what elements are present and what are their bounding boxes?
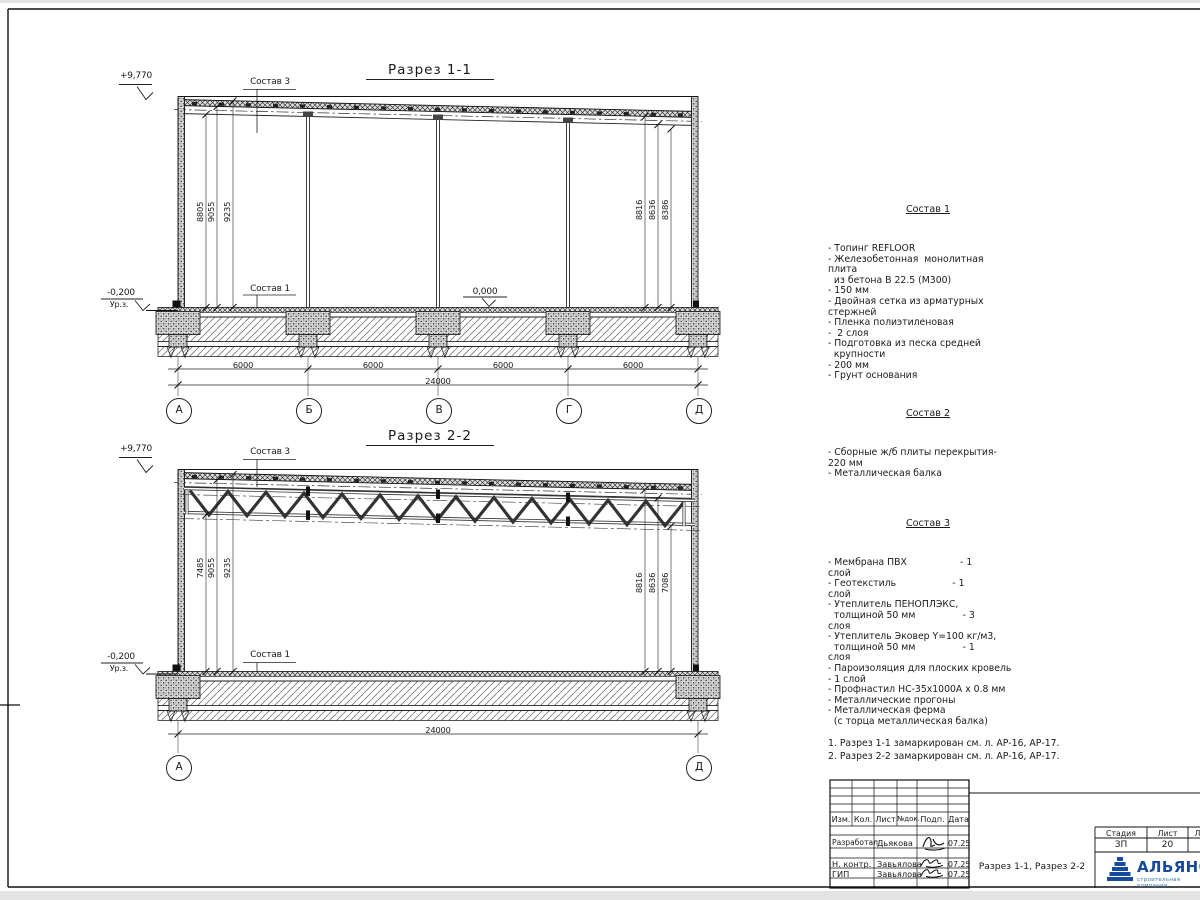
sostav3-line: толщиной 50 мм - 3: [828, 611, 1028, 622]
tb-sheet-value: 20: [1147, 840, 1188, 850]
sostav3-line: - Мембрана ПВХ - 1: [828, 558, 1028, 569]
section2-elevation-ground: -0,200: [97, 652, 145, 662]
section1-title: Разрез 1-1: [366, 62, 494, 80]
sostav3-line: (с торца металлическая балка): [828, 717, 1028, 728]
signature-nkontr: [921, 860, 943, 868]
axis-bubble-v: В: [426, 398, 452, 424]
tb-name: Дьякова: [877, 838, 916, 848]
tb-col-podp: Подп.: [917, 815, 948, 824]
tb-col-ndok: №док.: [897, 815, 917, 823]
sostav1-line: - Топинг REFLOOR: [828, 244, 1028, 255]
tb-col-list: Лист: [874, 815, 897, 824]
tb-sheet-header: Лист: [1147, 829, 1188, 838]
sostav3-lines: - Мембрана ПВХ - 1слой- Геотекстиль - 1с…: [828, 558, 1028, 728]
dim-label: 9055: [206, 190, 216, 234]
sostav1-title: Состав 1: [828, 205, 1028, 216]
axis-bubble-d: Д: [686, 398, 712, 424]
sostav1-block: Состав 1 - Топинг REFLOOR- Железобетонна…: [828, 184, 1028, 403]
note-line: 2. Разрез 2-2 замаркирован см. л. АР-16,…: [828, 750, 1060, 763]
sostav2-title: Состав 2: [828, 409, 1028, 420]
section1-elevation-zero: 0,000: [461, 287, 509, 297]
section2-ground-label: Ур.з.: [99, 664, 139, 673]
tb-sheets-header: Листов: [1188, 829, 1200, 838]
tb-role: ГИП: [832, 869, 874, 879]
dim-label: 8816: [634, 188, 644, 232]
section1-sostav3-label: Состав 3: [240, 77, 300, 87]
sostav1-line: - Грунт основания: [828, 371, 1028, 382]
dim-label: 6000: [603, 360, 663, 370]
dim-label-total: 24000: [408, 376, 468, 386]
dim-label: 9055: [206, 546, 216, 590]
dim-label: 9235: [222, 546, 232, 590]
dim-label: 6000: [213, 360, 273, 370]
drawing-sheet: Разрез 1-1 +9,770 Состав 3 Состав 1 0,00…: [0, 0, 1200, 900]
sostav3-block: Состав 3 - Мембрана ПВХ - 1слой- Геотекс…: [828, 498, 1028, 749]
section1-elevation-top: +9,770: [112, 71, 160, 81]
tb-name: Завьялова: [877, 859, 916, 869]
section1-ground-label: Ур.з.: [99, 300, 139, 309]
dim-label: 6000: [473, 360, 533, 370]
sostav3-line: - Пароизоляция для плоских кровель: [828, 664, 1028, 675]
axis-bubble-a: А: [166, 755, 192, 781]
section1-elevation-ground: -0,200: [97, 288, 145, 298]
sostav2-line: - Сборные ж/б плиты перекрытия-: [828, 448, 1028, 459]
axis-bubble-b: Б: [296, 398, 322, 424]
dim-label: 8805: [195, 190, 205, 234]
sostav3-line: - Геотекстиль - 1: [828, 579, 1028, 590]
dim-label: 7485: [195, 546, 205, 590]
dim-label: 7086: [660, 561, 670, 605]
axis-bubble-g: Г: [556, 398, 582, 424]
alliance-logo-subtext: строительная компания: [1137, 877, 1200, 889]
tb-name: Завьялова: [877, 869, 916, 879]
tb-col-izm: Изм.: [830, 815, 852, 824]
dim-label-total: 24000: [408, 725, 468, 735]
sostav2-block: Состав 2 - Сборные ж/б плиты перекрытия-…: [828, 388, 1028, 501]
tb-col-data: Дата: [948, 815, 969, 824]
sostav1-line: - Двойная сетка из арматурных: [828, 297, 1028, 308]
tb-stage-header: Стадия: [1095, 829, 1147, 838]
section2-elevation-top: +9,770: [112, 444, 160, 454]
sostav1-lines: - Топинг REFLOOR- Железобетонная монолит…: [828, 244, 1028, 382]
tb-stage-value: ЗП: [1095, 840, 1147, 850]
dim-label: 8816: [634, 561, 644, 605]
tb-role: Разработал: [832, 838, 874, 847]
sheet-notes: 1. Разрез 1-1 замаркирован см. л. АР-16,…: [828, 737, 1060, 763]
section2-sostav3-label: Состав 3: [240, 447, 300, 457]
tb-role: Н. контр.: [832, 859, 874, 869]
axis-bubble-d: Д: [686, 755, 712, 781]
sostav1-line: - Железобетонная монолитная: [828, 255, 1028, 266]
dim-label: 6000: [343, 360, 403, 370]
section2-title: Разрез 2-2: [366, 428, 494, 446]
sostav1-line: крупности: [828, 350, 1028, 361]
tb-date: 07.25: [948, 860, 969, 869]
sostav3-line: толщиной 50 мм - 1: [828, 643, 1028, 654]
sostav2-lines: - Сборные ж/б плиты перекрытия-220 мм- М…: [828, 448, 1028, 480]
tb-col-kol: Кол.: [852, 815, 874, 824]
sostav3-title: Состав 3: [828, 519, 1028, 530]
dim-label: 8636: [647, 561, 657, 605]
tb-doc-title: Разрез 1-1, Разрез 2-2: [969, 861, 1095, 872]
section2-sostav1-label: Состав 1: [240, 650, 300, 660]
alliance-logo-text: АЛЬЯНС: [1137, 858, 1200, 876]
note-line: 1. Разрез 1-1 замаркирован см. л. АР-16,…: [828, 737, 1060, 750]
dim-label: 9235: [222, 190, 232, 234]
axis-bubble-a: А: [166, 398, 192, 424]
tb-date: 07.25: [948, 839, 969, 848]
alliance-logo-icon: [1107, 857, 1133, 881]
dim-label: 8386: [660, 188, 670, 232]
tb-date: 07.25: [948, 870, 969, 879]
sostav2-line: - Металлическая балка: [828, 469, 1028, 480]
tb-sheets-value: 21: [1188, 840, 1200, 850]
signature-gip: [921, 870, 943, 878]
dim-label: 8636: [647, 188, 657, 232]
section1-sostav1-label: Состав 1: [240, 284, 300, 294]
